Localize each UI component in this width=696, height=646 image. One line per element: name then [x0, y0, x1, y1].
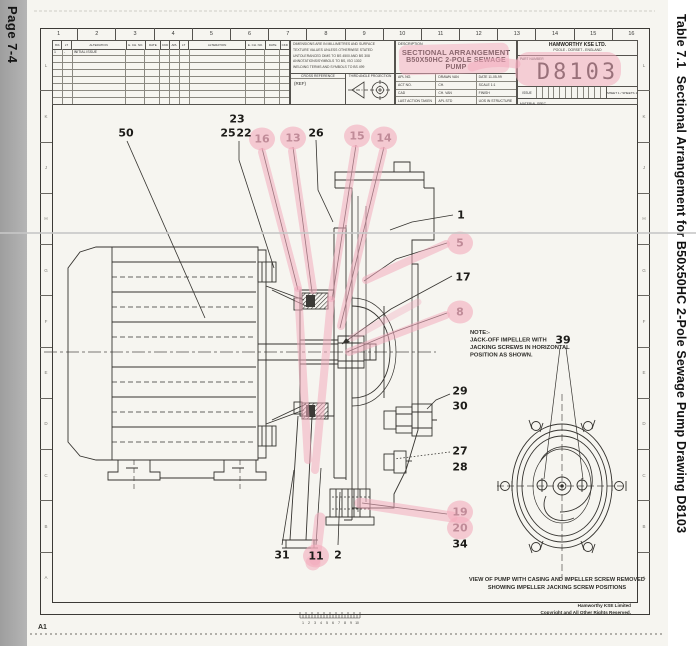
manual-page: Page 7-4 12345678910111213141516 LKJHGFE… [0, 0, 696, 646]
revision-cell [159, 63, 169, 69]
revision-cell [189, 70, 244, 76]
zone-number-12: 12 [459, 28, 497, 40]
revision-cell [279, 91, 289, 97]
revision-row [53, 63, 289, 70]
zone-letter-D: D [638, 398, 650, 449]
revision-cell [279, 63, 289, 69]
revision-row [53, 70, 289, 77]
zone-number-4: 4 [154, 28, 192, 40]
zone-number-11: 11 [421, 28, 459, 40]
revision-cell [62, 56, 72, 62]
zone-letter-L: L [638, 40, 650, 90]
revision-cell [159, 56, 169, 62]
revision-cell [159, 91, 169, 97]
scale-bar-number: 5 [326, 621, 328, 625]
sheet-inner-border [52, 40, 638, 603]
revision-cell [159, 77, 169, 83]
zone-letter-H: H [638, 193, 650, 244]
zone-letter-K: K [638, 90, 650, 141]
projection-box: THIRD ANGLE PROJECTION [346, 74, 394, 104]
revision-cell [279, 98, 289, 104]
revision-cell [264, 63, 279, 69]
revision-cell [125, 70, 144, 76]
revision-cell [144, 84, 159, 90]
revision-cell: INITIAL ISSUE [72, 49, 125, 55]
zone-letter-C: C [40, 449, 52, 500]
revision-cell [144, 56, 159, 62]
revision-cell [125, 91, 144, 97]
revision-cell [189, 84, 244, 90]
third-angle-projection-icon [346, 78, 394, 102]
revision-header: LT [179, 41, 188, 49]
field-cell: ACT NO. [396, 82, 435, 89]
zone-letter-D: D [40, 398, 52, 449]
description-block: DESCRIPTION SECTIONAL ARRANGEMENT B50X50… [395, 40, 517, 105]
part-number-box: PART NUMBER D8103 [518, 56, 637, 87]
cross-reference-value: (REF) [291, 79, 345, 86]
revision-cell [144, 77, 159, 83]
revision-header: LT [61, 41, 70, 49]
revision-header: DATE [265, 41, 280, 49]
revision-cell [169, 91, 179, 97]
revision-cell [72, 84, 125, 90]
revision-cell [125, 56, 144, 62]
revision-cell [53, 63, 62, 69]
material-spec-label: MATERIAL SPEC. [518, 99, 637, 109]
field-row: LAST ACTION TAKENAPL STDUOS IN STRUCTURE [396, 97, 516, 104]
page-number-label: Page 7-4 [5, 6, 20, 63]
scale-bar-number: 10 [355, 621, 359, 625]
field-row: CADCH. VANFINISH [396, 90, 516, 98]
revision-cell [169, 56, 179, 62]
revision-cell [179, 49, 189, 55]
scale-bar-number: 4 [320, 621, 322, 625]
zone-letter-G: G [40, 244, 52, 295]
scale-bar-number: 6 [332, 621, 334, 625]
revision-cell [264, 56, 279, 62]
revision-row [53, 98, 289, 104]
issue-tick-cells [536, 87, 606, 98]
company-header: HAMWORTHY KSE LTD. POOLE - DORSET - ENGL… [518, 42, 637, 56]
revision-header: ALTERATION [188, 41, 245, 49]
zone-number-9: 9 [345, 28, 383, 40]
part-number-value: D8103 [518, 60, 637, 85]
scale-bar-number: 7 [338, 621, 340, 625]
revision-cell [125, 63, 144, 69]
revision-cell [245, 91, 264, 97]
zone-letter-H: H [40, 193, 52, 244]
zone-letter-F: F [40, 295, 52, 346]
revision-cell [169, 63, 179, 69]
revision-cell [189, 77, 244, 83]
zone-number-13: 13 [497, 28, 535, 40]
cross-reference-box: CROSS REFERENCE (REF) [291, 74, 346, 104]
revision-cell [169, 84, 179, 90]
scale-bar-number: 1 [302, 621, 304, 625]
revision-cell [179, 91, 189, 97]
description-label: DESCRIPTION [396, 41, 516, 46]
revision-cell [264, 77, 279, 83]
revision-cell [53, 70, 62, 76]
revision-cell [72, 77, 125, 83]
revision-header: APL [169, 41, 178, 49]
field-cell: APL NO. [396, 74, 435, 81]
zone-letter-J: J [40, 142, 52, 193]
revision-row [53, 91, 289, 98]
revision-cell [189, 49, 244, 55]
zone-letter-F: F [638, 295, 650, 346]
revision-cell [144, 70, 159, 76]
revision-cell [245, 63, 264, 69]
revision-header: CKD [160, 41, 169, 49]
revision-table: ISSLTALTERATIONE. CH. NO.DATECKDAPLLTALT… [52, 40, 290, 105]
revision-cell [169, 77, 179, 83]
field-row: APL NO.DRAWN VANDATE 11-05-99 [396, 74, 516, 82]
zone-letter-A: A [638, 552, 650, 603]
revision-row [53, 56, 289, 63]
revision-cell [279, 49, 289, 55]
field-cell: LAST ACTION TAKEN [396, 97, 435, 104]
zone-number-7: 7 [268, 28, 306, 40]
sheet-size-ref: A1 [38, 624, 47, 631]
revision-cell [279, 77, 289, 83]
revision-cell [125, 98, 144, 104]
revision-cell [189, 63, 244, 69]
revision-cell [53, 84, 62, 90]
scale-bar-number: 2 [308, 621, 310, 625]
revision-cell [53, 56, 62, 62]
revision-cell [169, 70, 179, 76]
revision-cell [264, 91, 279, 97]
revision-header: E. CH. NO. [245, 41, 264, 49]
revision-cell [144, 49, 159, 55]
zone-number-8: 8 [306, 28, 344, 40]
revision-cell: - [62, 49, 72, 55]
revision-cell [72, 56, 125, 62]
revision-cell [179, 98, 189, 104]
revision-cell [62, 63, 72, 69]
standard-notes-lines: DIMENSIONS ARE IN MILLIMETRES AND SURFAC… [291, 41, 394, 73]
revision-cell [72, 91, 125, 97]
revision-cell [53, 77, 62, 83]
revision-cell [179, 63, 189, 69]
zone-number-2: 2 [77, 28, 115, 40]
field-cell: UOS IN STRUCTURE [476, 97, 516, 104]
revision-cell [179, 56, 189, 62]
revision-cell [245, 70, 264, 76]
revision-cell [264, 84, 279, 90]
zone-letter-B: B [638, 500, 650, 551]
revision-cell [264, 49, 279, 55]
field-cell: DRAWN VAN [435, 74, 475, 81]
revision-cell [264, 98, 279, 104]
revision-header: CKD [280, 41, 289, 49]
drawing-title-line2: B50X50HC 2-POLE SEWAGE PUMP [396, 57, 516, 71]
revision-cell [169, 49, 179, 55]
revision-row [53, 77, 289, 84]
revision-table-rows: 1-INITIAL ISSUE [53, 49, 289, 104]
scale-bar-number: 8 [344, 621, 346, 625]
revision-cell [169, 98, 179, 104]
title-block-fields: APL NO.DRAWN VANDATE 11-05-99ACT NO.CH.S… [396, 73, 516, 104]
zone-letter-C: C [638, 449, 650, 500]
revision-cell [245, 84, 264, 90]
zone-letter-K: K [40, 90, 52, 141]
revision-cell [245, 49, 264, 55]
issue-row: ISSUE SHEET 1 / SHEETS 1 [518, 87, 637, 99]
issue-label: ISSUE [518, 87, 536, 98]
zone-letter-L: L [40, 40, 52, 90]
zone-letter-E: E [638, 347, 650, 398]
zone-letter-E: E [40, 347, 52, 398]
revision-cell [245, 98, 264, 104]
zone-number-10: 10 [383, 28, 421, 40]
revision-cell [144, 91, 159, 97]
zone-letter-G: G [638, 244, 650, 295]
revision-cell [189, 56, 244, 62]
zone-letter-J: J [638, 142, 650, 193]
field-cell: CAD [396, 90, 435, 97]
field-cell: DATE 11-05-99 [476, 74, 516, 81]
border-zone-numbers: 12345678910111213141516 [40, 28, 650, 40]
drawing-title-line1: SECTIONAL ARRANGEMENT [396, 48, 516, 57]
revision-cell [159, 70, 169, 76]
revision-header: ISS [53, 41, 61, 49]
revision-cell [72, 98, 125, 104]
revision-cell [179, 70, 189, 76]
zone-number-6: 6 [230, 28, 268, 40]
border-zone-letters-left: LKJHGFEDCBA [40, 40, 52, 603]
zone-number-15: 15 [574, 28, 612, 40]
revision-cell [189, 91, 244, 97]
zone-letter-A: A [40, 552, 52, 603]
revision-cell [62, 91, 72, 97]
field-cell: APL STD [435, 97, 475, 104]
field-row: ACT NO.CH.SCALE 1:1 [396, 82, 516, 90]
left-page-margin: Page 7-4 [0, 0, 28, 646]
revision-cell [72, 70, 125, 76]
revision-cell [62, 84, 72, 90]
standard-note-line: WELDING TERMS AND SYMBOLS TO BS 499 [293, 65, 392, 71]
zone-number-1: 1 [40, 28, 77, 40]
revision-cell [179, 84, 189, 90]
revision-header: E. CH. NO. [126, 41, 145, 49]
zone-letter-B: B [40, 500, 52, 551]
field-cell: FINISH [476, 90, 516, 97]
right-page-margin: Table 7.1 Sectional Arrangement for B50x… [668, 0, 696, 646]
revision-cell [62, 70, 72, 76]
revision-cell [144, 63, 159, 69]
zone-number-3: 3 [115, 28, 153, 40]
drawing-sheet-scan: 12345678910111213141516 LKJHGFEDCBA LKJH… [27, 0, 668, 646]
revision-cell [53, 91, 62, 97]
table-caption-label: Table 7.1 Sectional Arrangement for B50x… [674, 14, 688, 533]
field-cell: CH. [435, 82, 475, 89]
revision-row: 1-INITIAL ISSUE [53, 49, 289, 56]
field-cell: CH. VAN [435, 90, 475, 97]
revision-cell [125, 49, 144, 55]
revision-header: DATE [145, 41, 160, 49]
zone-number-5: 5 [192, 28, 230, 40]
scale-bar-number: 3 [314, 621, 316, 625]
zone-number-16: 16 [612, 28, 650, 40]
revision-cell [279, 56, 289, 62]
revision-cell [189, 98, 244, 104]
part-number-block: HAMWORTHY KSE LTD. POOLE - DORSET - ENGL… [517, 40, 638, 105]
revision-cell [159, 98, 169, 104]
revision-cell [279, 84, 289, 90]
revision-cell [53, 98, 62, 104]
field-cell: SCALE 1:1 [476, 82, 516, 89]
revision-cell [62, 77, 72, 83]
sheet-label: SHEET 1 / SHEETS 1 [606, 87, 637, 98]
revision-cell [144, 98, 159, 104]
revision-cell [264, 70, 279, 76]
company-address: POOLE - DORSET - ENGLAND [518, 48, 637, 52]
revision-cell [125, 84, 144, 90]
revision-cell [179, 77, 189, 83]
revision-header: ALTERATION [71, 41, 126, 49]
revision-cell [72, 63, 125, 69]
revision-cell [245, 77, 264, 83]
revision-cell [125, 77, 144, 83]
border-zone-letters-right: LKJHGFEDCBA [638, 40, 650, 603]
revision-row [53, 84, 289, 91]
revision-cell [159, 84, 169, 90]
revision-cell [245, 56, 264, 62]
scale-bar-number: 9 [350, 621, 352, 625]
revision-cell [279, 70, 289, 76]
scan-fold-artifact [0, 232, 696, 234]
revision-cell [62, 98, 72, 104]
zone-number-14: 14 [535, 28, 573, 40]
revision-cell [159, 49, 169, 55]
revision-cell: 1 [53, 49, 62, 55]
standard-notes-block: DIMENSIONS ARE IN MILLIMETRES AND SURFAC… [290, 40, 395, 105]
